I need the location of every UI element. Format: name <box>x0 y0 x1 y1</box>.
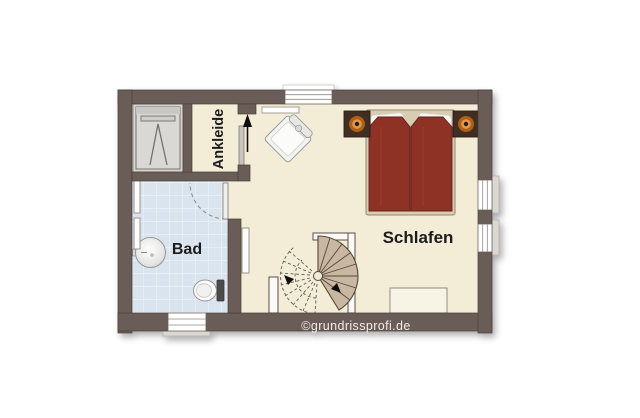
dressing-door-leaf <box>239 126 244 170</box>
radiator-bath-upper <box>134 178 140 213</box>
window-bottom <box>168 313 206 331</box>
sill-right-upper <box>492 176 499 213</box>
toilet <box>194 280 225 301</box>
door-leaf <box>223 183 228 219</box>
wall-right-upper <box>478 90 492 180</box>
room-label-bathroom: Bad <box>172 241 202 258</box>
sill-top <box>283 85 334 90</box>
double-bed <box>366 110 455 215</box>
wall-right-mid <box>478 210 492 224</box>
sill-right-lower <box>492 220 499 255</box>
drain-icon <box>150 253 154 257</box>
wardrobe-rail <box>141 116 175 121</box>
wall-bottom-left <box>118 313 168 331</box>
room-label-bedroom: Schlafen <box>383 228 454 247</box>
room-label-dressing: Ankleide <box>211 109 227 169</box>
wall-bath-top <box>132 172 238 181</box>
sill-bottom <box>163 331 210 336</box>
dresser <box>390 288 447 313</box>
stair-newel <box>314 272 323 281</box>
wall-top-right <box>332 90 492 104</box>
wall-bath-right <box>228 219 241 313</box>
wall-dressing-stub-top <box>238 104 256 114</box>
floor-plan: Bad Schlafen Ankleide ©grundrissprofi.de <box>118 85 499 336</box>
duvet-left <box>369 117 410 211</box>
nightstand-left <box>344 111 370 137</box>
wall-left <box>118 90 132 333</box>
nightstand-right <box>453 111 479 137</box>
wall-wardrobe-right <box>183 104 192 172</box>
wall-right-lower <box>478 252 492 333</box>
toilet-tank <box>217 280 224 301</box>
watermark-text: ©grundrissprofi.de <box>301 319 411 333</box>
radiator-bedroom <box>242 228 249 273</box>
radiator-bath-lower <box>134 218 140 249</box>
window-shelf <box>262 107 299 113</box>
wall-dressing-stub-bottom <box>238 165 250 181</box>
duvet-right <box>411 117 452 211</box>
window-right-lower <box>478 224 492 252</box>
window-top <box>285 90 332 104</box>
wardrobe <box>136 107 180 169</box>
wall-top-left <box>118 90 285 104</box>
window-right-upper <box>478 180 492 210</box>
floor-plan-image: Bad Schlafen Ankleide ©grundrissprofi.de <box>0 0 640 418</box>
